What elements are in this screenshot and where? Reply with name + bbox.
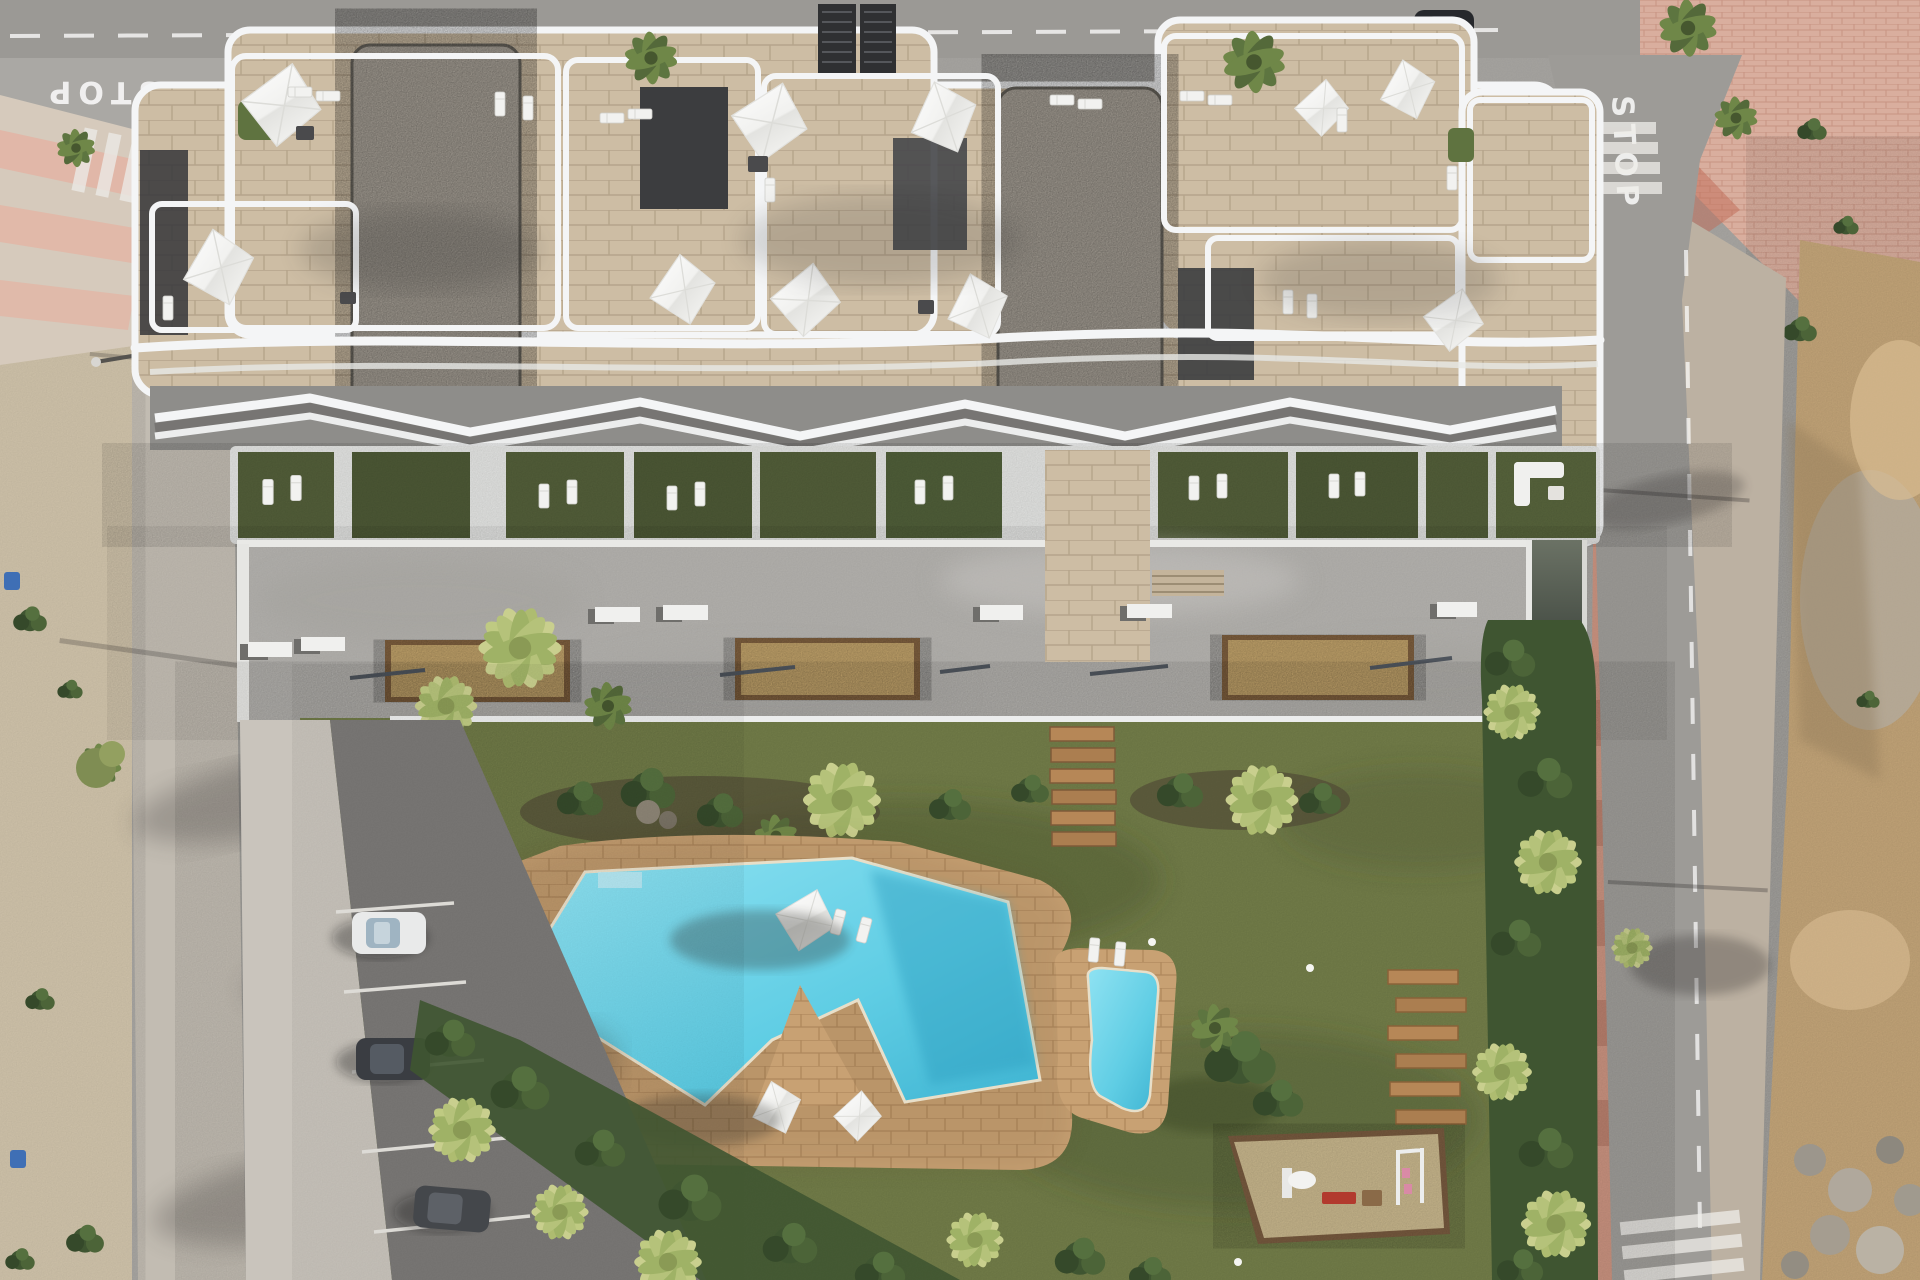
bench xyxy=(1430,602,1477,619)
private-gardens xyxy=(230,446,1600,544)
entrance-steps xyxy=(1152,570,1224,596)
bench xyxy=(656,605,708,622)
scene-canvas: STOP xyxy=(0,0,1920,1280)
kidney-pool xyxy=(1088,968,1158,1111)
dark-roof-block xyxy=(1178,268,1254,380)
stair-core xyxy=(860,4,896,78)
bench xyxy=(588,607,640,624)
bench xyxy=(973,605,1023,622)
pergola-band xyxy=(150,386,1562,452)
entrance-path xyxy=(1045,450,1150,662)
plaza-west-wall xyxy=(237,544,249,722)
aerial-render: STOP xyxy=(0,0,1920,1280)
blue-bin xyxy=(4,572,20,590)
plaza-top-wall xyxy=(237,540,1537,547)
east-hedge xyxy=(1472,620,1598,1280)
stair-core xyxy=(818,4,856,76)
gravel-grain-east xyxy=(998,88,1162,428)
lawn-top-wall xyxy=(390,716,1540,722)
roof-green xyxy=(1448,128,1474,162)
dark-roof-block xyxy=(640,87,728,209)
blue-bin xyxy=(10,1150,26,1168)
playground xyxy=(1228,1128,1450,1244)
road-marking-stop-right: STOP xyxy=(1604,95,1645,214)
pool-steps xyxy=(598,872,642,888)
left-sand-grain xyxy=(0,300,132,1280)
